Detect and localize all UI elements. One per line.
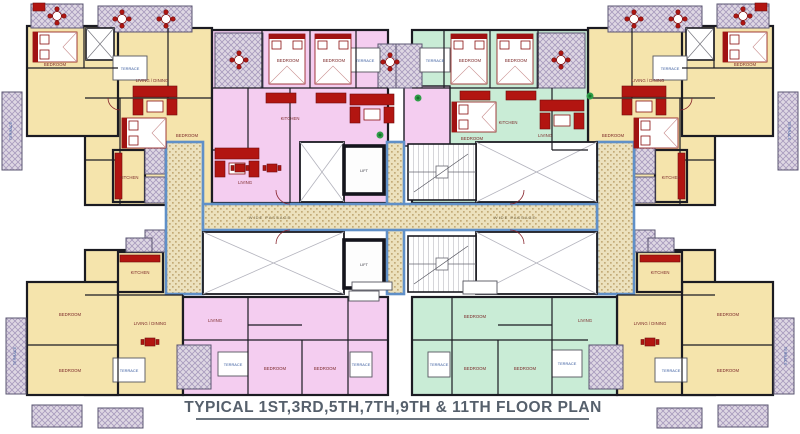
room-label-bedroom: BEDROOM bbox=[602, 133, 625, 138]
unit-bottom-center-left bbox=[183, 297, 388, 395]
passage-label: WIDE PASSAGE bbox=[494, 215, 536, 220]
duct-kitchen-right bbox=[648, 238, 674, 252]
terrace-label: TERRACE bbox=[8, 121, 13, 140]
staircase-top bbox=[408, 144, 476, 200]
room-label-living-dining: LIVING / DINING bbox=[632, 78, 665, 83]
terrace-label: TERRACE bbox=[224, 362, 243, 367]
lift-top-left-tower bbox=[86, 28, 114, 60]
room-label-bedroom: BEDROOM bbox=[264, 366, 287, 371]
terrace-label: TERRACE bbox=[558, 361, 577, 366]
kitchen-counter-bottom-right bbox=[640, 255, 680, 262]
passage-label: WIDE PASSAGE bbox=[249, 215, 291, 220]
lift-label: LIFT bbox=[360, 169, 368, 173]
terrace-label: TERRACE bbox=[120, 368, 139, 373]
room-label-bedroom: BEDROOM bbox=[59, 368, 82, 373]
room-label-bedroom: BEDROOM bbox=[464, 366, 487, 371]
duct-right-1 bbox=[635, 148, 655, 174]
terrace-label: TERRACE bbox=[430, 362, 449, 367]
floor-plan-page: BEDROOM BEDROOM LIVING / DINING LIVING /… bbox=[0, 0, 800, 434]
terrace-bottom-right-2 bbox=[657, 408, 702, 428]
room-label-bedroom: BEDROOM bbox=[734, 62, 757, 67]
room-center-pink bbox=[404, 86, 450, 146]
terrace-label: TERRACE bbox=[783, 347, 788, 366]
room-label-bedroom: BEDROOM bbox=[314, 366, 337, 371]
terrace-center-right bbox=[396, 44, 422, 88]
room-label-bedroom: BEDROOM bbox=[717, 312, 740, 317]
kitchen-counter-green-2 bbox=[506, 91, 536, 100]
terrace-label: TERRACE bbox=[662, 368, 681, 373]
room-label-living: LIVING bbox=[538, 133, 553, 138]
terrace-bottom-right-1 bbox=[718, 405, 768, 427]
room-label-bedroom: BEDROOM bbox=[59, 312, 82, 317]
unit-bottom-center-right bbox=[412, 297, 617, 395]
room-label-kitchen: KITCHEN bbox=[120, 175, 139, 180]
room-label-kitchen: KITCHEN bbox=[651, 270, 670, 275]
room-label-bedroom: BEDROOM bbox=[717, 368, 740, 373]
room-label-living: LIVING bbox=[208, 318, 223, 323]
lift-top-right-tower bbox=[686, 28, 714, 60]
floor-plan-drawing: BEDROOM BEDROOM LIVING / DINING LIVING /… bbox=[0, 0, 800, 434]
terrace-label: TERRACE bbox=[661, 66, 680, 71]
room-label-bedroom: BEDROOM bbox=[514, 366, 537, 371]
room-label-bedroom: BEDROOM bbox=[461, 136, 484, 141]
title-block: TYPICAL 1ST,3RD,5TH,7TH,9TH & 11TH FLOOR… bbox=[184, 399, 602, 419]
label-box-center bbox=[352, 282, 392, 290]
duct-left-1 bbox=[145, 148, 165, 174]
room-label-bedroom: BEDROOM bbox=[277, 58, 300, 63]
duct-left-2 bbox=[145, 177, 165, 203]
room-label-bedroom: BEDROOM bbox=[176, 133, 199, 138]
terrace-label: TERRACE bbox=[426, 58, 445, 63]
room-label-bedroom: BEDROOM bbox=[323, 58, 346, 63]
room-label-bedroom: BEDROOM bbox=[459, 58, 482, 63]
terrace-label: TERRACE bbox=[121, 66, 140, 71]
room-label-kitchen: KITCHEN bbox=[281, 116, 300, 121]
room-label-bedroom: BEDROOM bbox=[464, 314, 487, 319]
plan-title: TYPICAL 1ST,3RD,5TH,7TH,9TH & 11TH FLOOR… bbox=[184, 399, 602, 416]
room-label-bedroom: BEDROOM bbox=[44, 62, 67, 67]
room-label-living-dining: LIVING / DINING bbox=[136, 78, 169, 83]
room-label-living-dining: LIVING / DINING bbox=[634, 321, 667, 326]
room-label-kitchen: KITCHEN bbox=[131, 270, 150, 275]
duct-kitchen-left bbox=[126, 238, 152, 252]
room-label-kitchen: KITCHEN bbox=[499, 120, 518, 125]
room-label-kitchen: KITCHEN bbox=[662, 175, 681, 180]
duct-right-2 bbox=[635, 177, 655, 203]
room-label-living: LIVING bbox=[238, 180, 253, 185]
kitchen-counter-pink-2 bbox=[316, 93, 346, 103]
terrace-bottom-left-1 bbox=[32, 405, 82, 427]
kitchen-counter-pink-1 bbox=[266, 93, 296, 103]
room-label-bedroom: BEDROOM bbox=[505, 58, 528, 63]
corner-tag-right bbox=[755, 3, 767, 11]
terrace-label: TERRACE bbox=[356, 58, 375, 63]
lift-label: LIFT bbox=[360, 263, 368, 267]
terrace-label: TERRACE bbox=[12, 346, 17, 365]
kitchen-counter-bottom-left bbox=[120, 255, 160, 262]
terrace-label: TERRACE bbox=[787, 122, 792, 141]
kitchen-counter-green-1 bbox=[460, 91, 490, 100]
room-label-living: LIVING bbox=[578, 318, 593, 323]
terrace-label: TERRACE bbox=[352, 362, 371, 367]
room-label-living-dining: LIVING / DINING bbox=[134, 321, 167, 326]
corner-tag-left bbox=[33, 3, 45, 11]
unit-bottom-right-tower bbox=[682, 282, 773, 395]
terrace-bottom-pink bbox=[177, 345, 211, 389]
meter-box bbox=[349, 291, 379, 301]
terrace-bottom-green bbox=[589, 345, 623, 389]
terrace-bottom-left-2 bbox=[98, 408, 143, 428]
lobby-right bbox=[597, 142, 634, 294]
unit-bottom-left-tower bbox=[27, 282, 118, 395]
label-box-green bbox=[463, 281, 497, 294]
lobby-left bbox=[166, 142, 203, 294]
